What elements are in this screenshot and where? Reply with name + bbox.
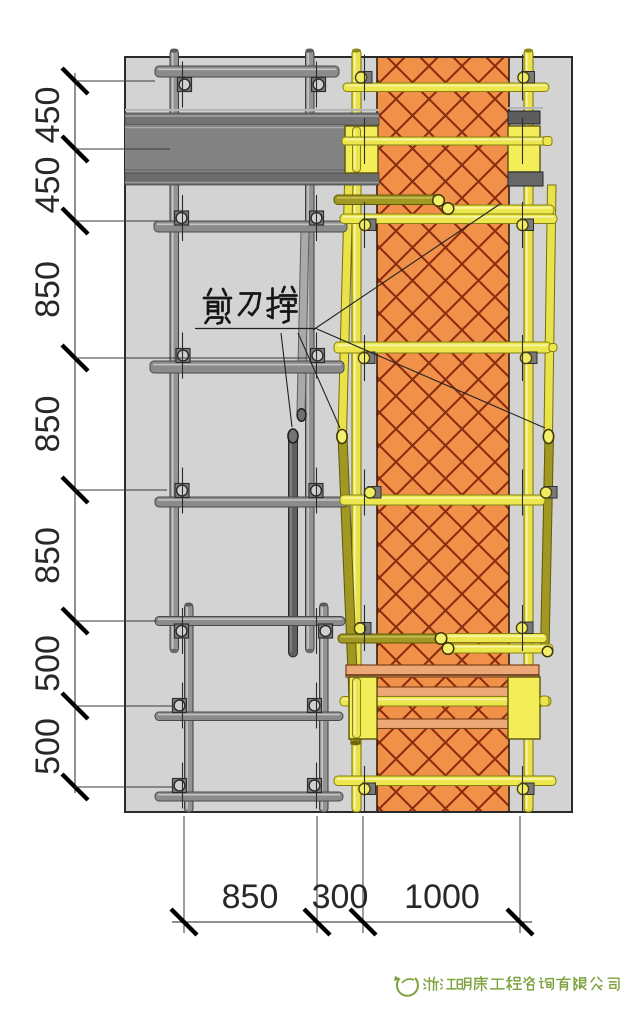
svg-text:850: 850 [29, 527, 67, 584]
svg-text:500: 500 [29, 635, 67, 692]
svg-text:500: 500 [29, 718, 67, 775]
svg-text:850: 850 [29, 261, 67, 318]
svg-text:300: 300 [312, 878, 369, 916]
svg-text:1000: 1000 [404, 878, 480, 916]
svg-text:450: 450 [29, 157, 67, 214]
svg-text:450: 450 [29, 87, 67, 144]
svg-text:850: 850 [222, 878, 279, 916]
svg-text:850: 850 [29, 396, 67, 453]
